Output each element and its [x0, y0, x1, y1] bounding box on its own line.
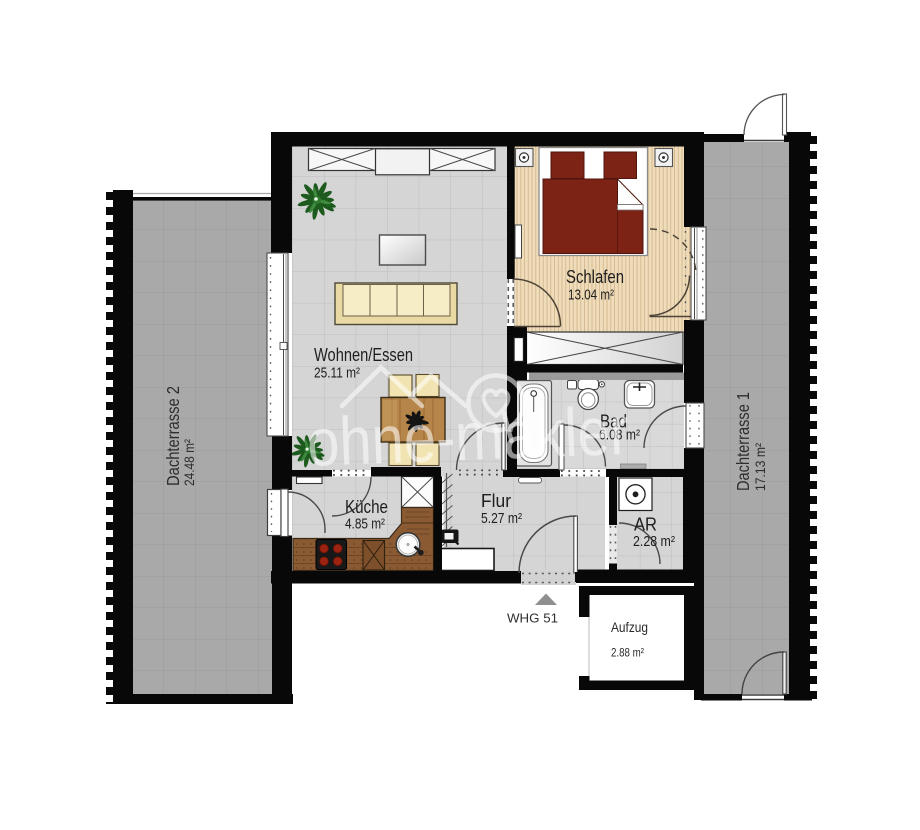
- svg-text:WHG 51: WHG 51: [507, 612, 558, 626]
- svg-text:25.11 m²: 25.11 m²: [314, 366, 360, 382]
- svg-text:13.04 m²: 13.04 m²: [568, 288, 614, 304]
- svg-text:Aufzug: Aufzug: [611, 620, 648, 635]
- svg-text:24.48 m²: 24.48 m²: [182, 439, 197, 486]
- svg-text:AR: AR: [634, 514, 657, 535]
- svg-text:2.88 m²: 2.88 m²: [611, 646, 644, 660]
- svg-text:Dachterrasse 2: Dachterrasse 2: [163, 386, 183, 486]
- svg-text:Küche: Küche: [345, 496, 388, 517]
- svg-text:Wohnen/Essen: Wohnen/Essen: [314, 344, 413, 365]
- svg-text:Dachterrasse 1: Dachterrasse 1: [733, 392, 753, 491]
- svg-text:5.27 m²: 5.27 m²: [481, 511, 522, 527]
- svg-text:Flur: Flur: [481, 490, 511, 511]
- svg-text:17.13 m²: 17.13 m²: [753, 443, 768, 491]
- svg-text:2.28 m²: 2.28 m²: [633, 534, 675, 550]
- svg-text:ohne-makler: ohne-makler: [306, 393, 631, 481]
- svg-text:4.85 m²: 4.85 m²: [345, 517, 385, 533]
- svg-text:Schlafen: Schlafen: [566, 266, 624, 287]
